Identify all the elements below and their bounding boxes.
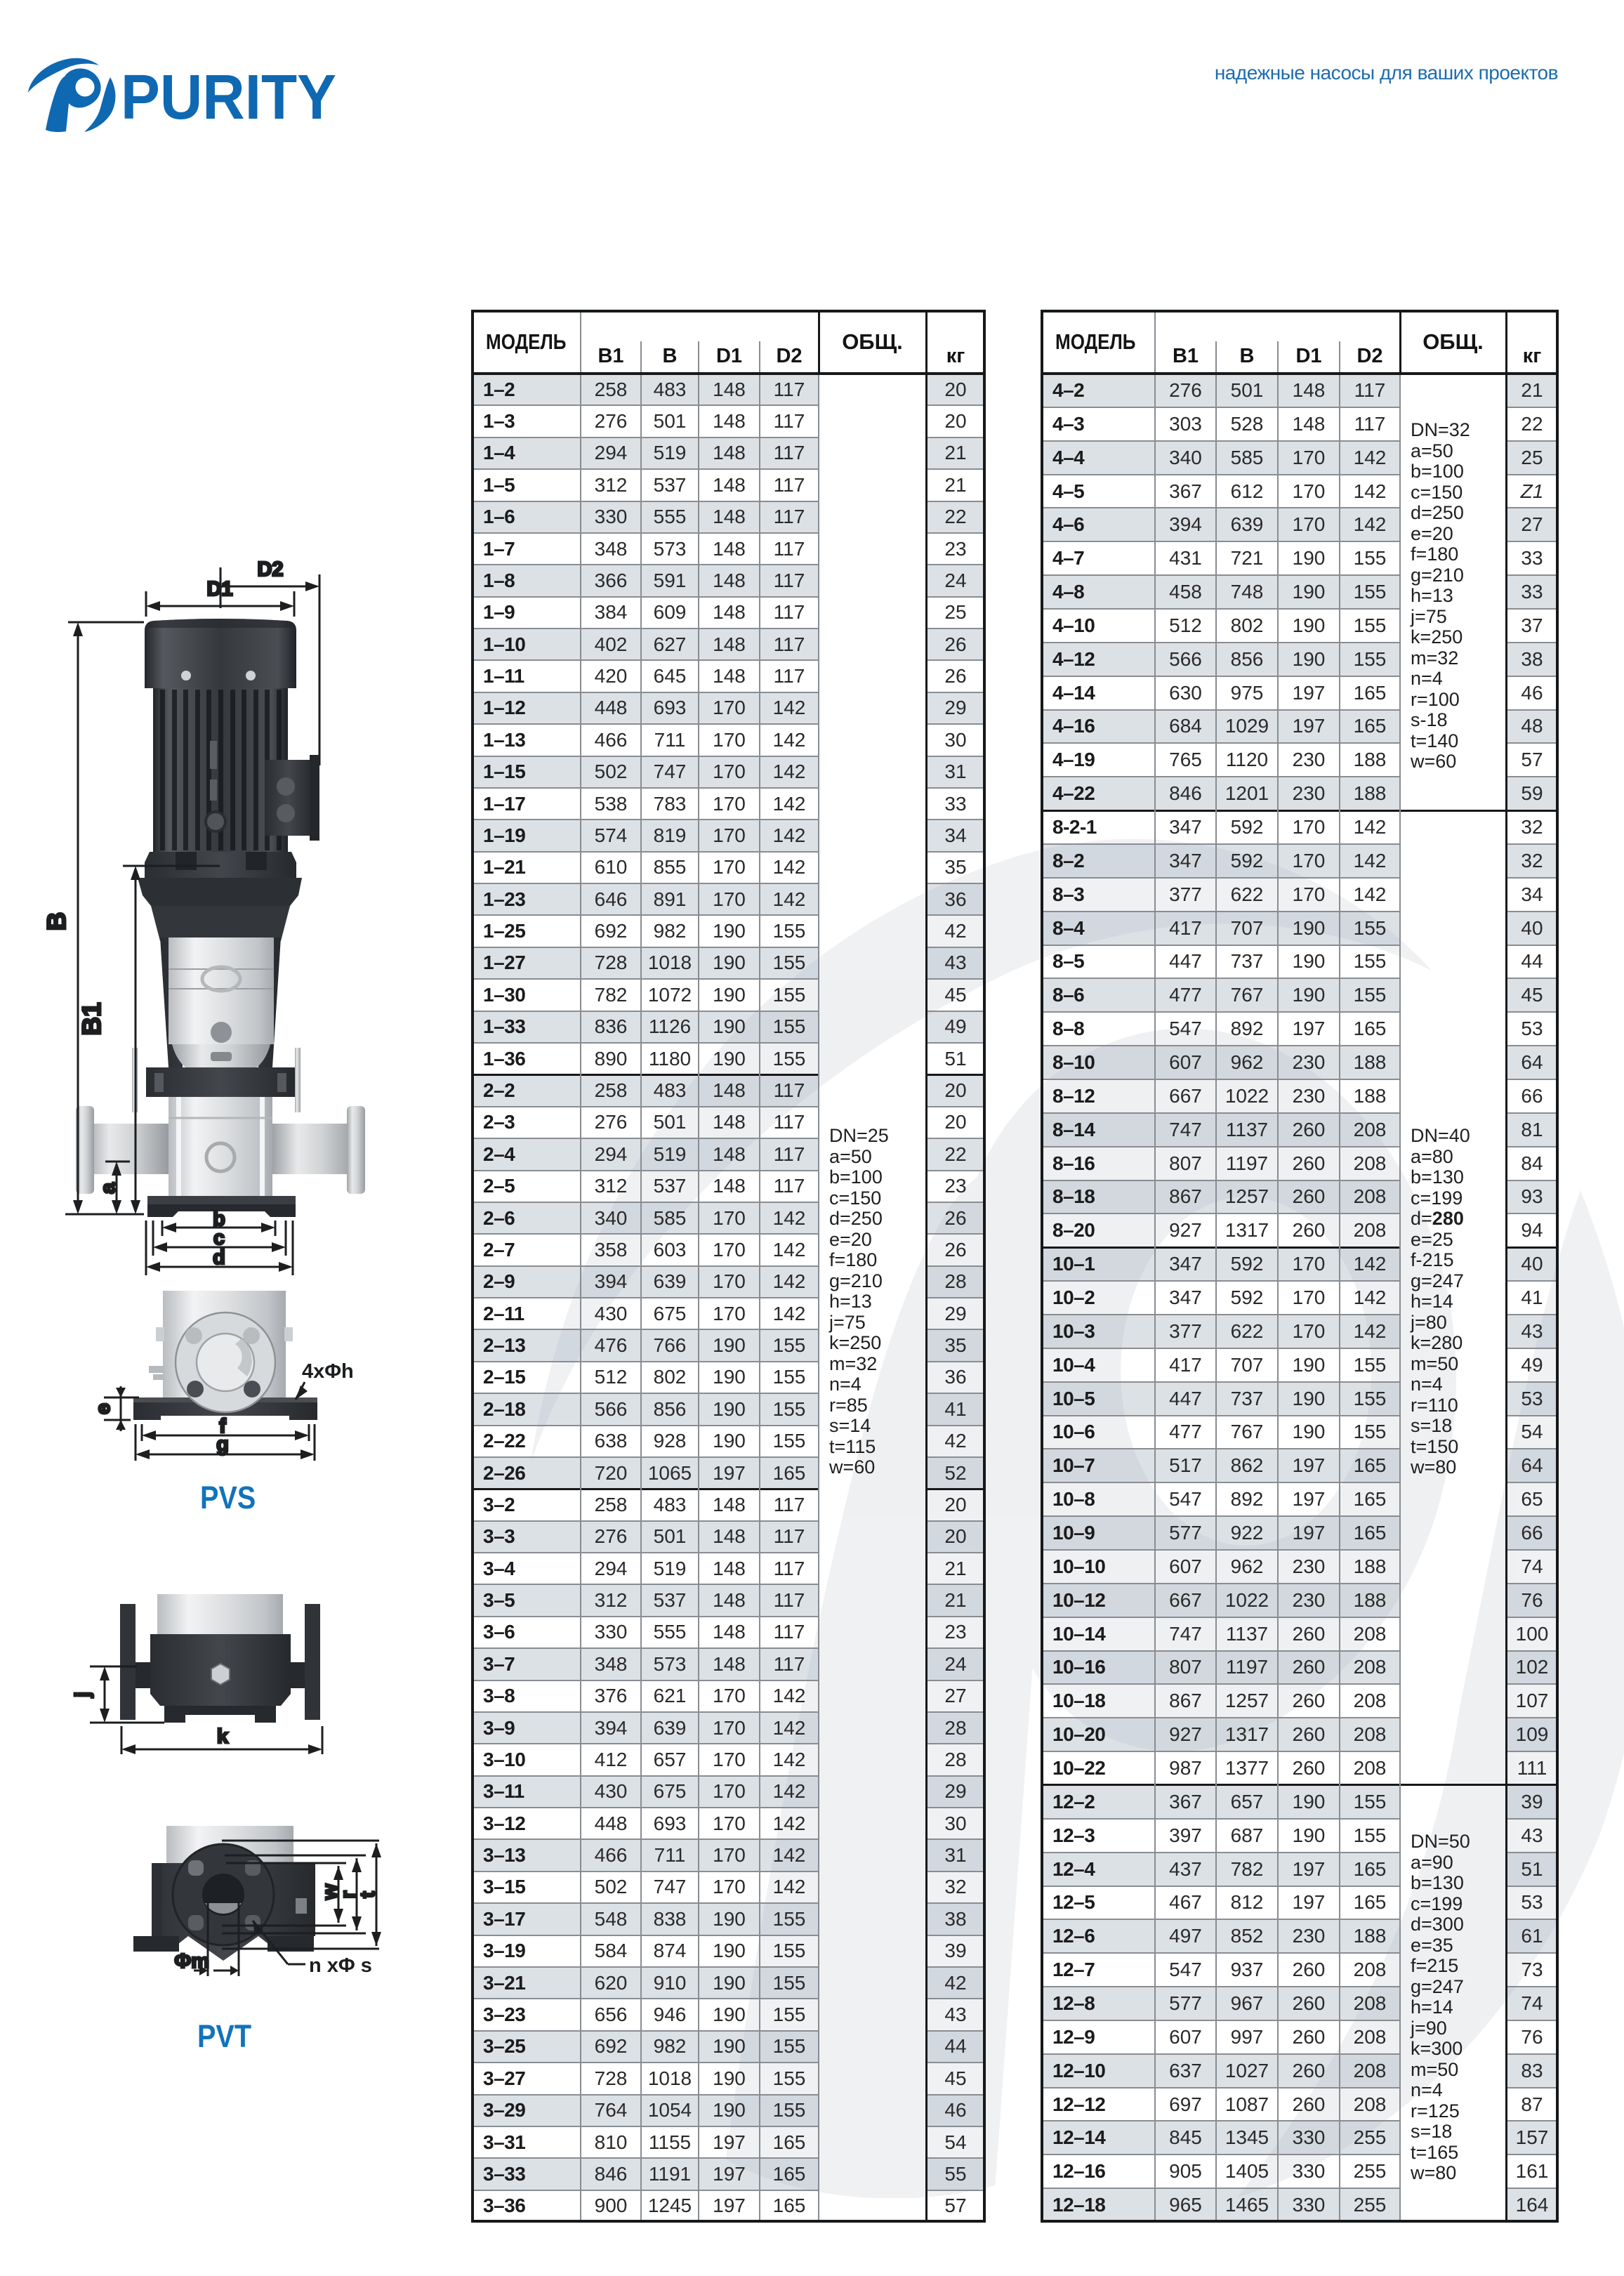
- svg-text:n xΦ s: n xΦ s: [309, 1954, 372, 1977]
- svg-text:t: t: [357, 1891, 379, 1898]
- svg-text:B1: B1: [77, 1002, 106, 1035]
- svg-text:D1: D1: [206, 578, 232, 600]
- svg-text:a: a: [97, 1182, 119, 1194]
- svg-text:e: e: [92, 1403, 114, 1414]
- svg-text:4xΦh: 4xΦh: [302, 1360, 354, 1383]
- svg-text:j: j: [72, 1692, 94, 1698]
- svg-text:g: g: [216, 1433, 229, 1456]
- svg-text:B: B: [42, 912, 71, 931]
- svg-text:D2: D2: [257, 558, 283, 581]
- svg-text:Φm: Φm: [174, 1950, 209, 1973]
- svg-text:k: k: [217, 1725, 229, 1748]
